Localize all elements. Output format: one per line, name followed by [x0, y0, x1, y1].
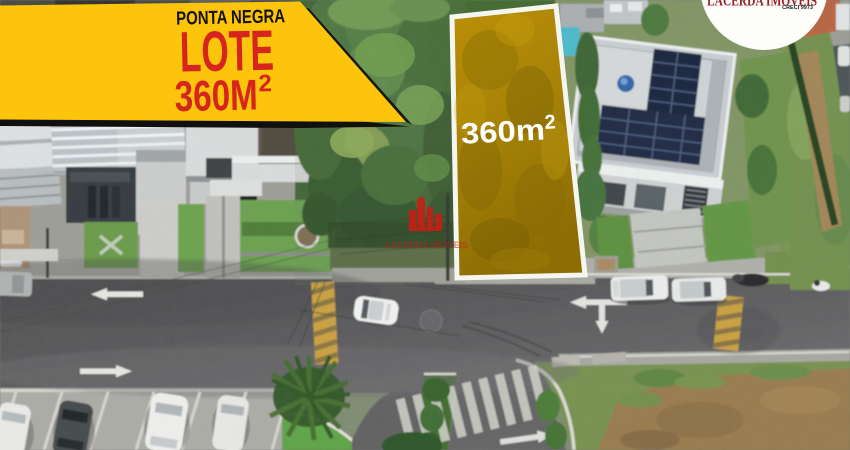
svg-text:360M: 360M [174, 71, 258, 121]
svg-text:CRECI 9973: CRECI 9973 [782, 5, 813, 11]
svg-text:2: 2 [544, 111, 556, 134]
svg-text:360m: 360m [460, 113, 546, 150]
svg-text:LACERDA IMÓVEIS: LACERDA IMÓVEIS [385, 239, 468, 251]
svg-text:2: 2 [258, 70, 272, 97]
